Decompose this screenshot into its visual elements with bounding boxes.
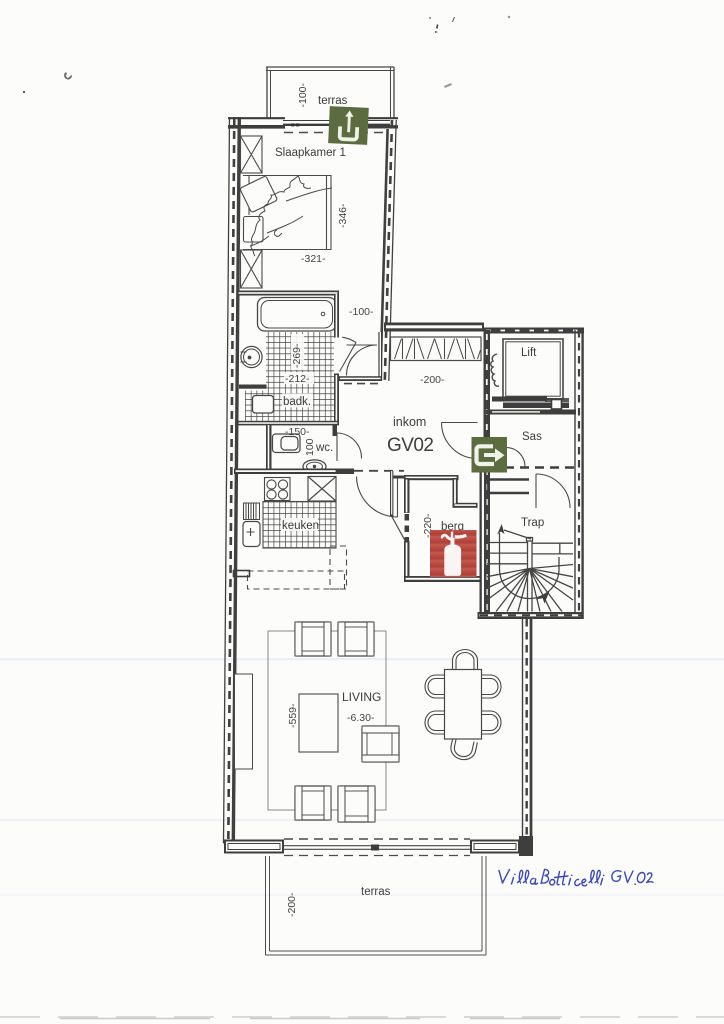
svg-text:Trap: Trap	[521, 517, 544, 529]
svg-text:terras: terras	[318, 95, 348, 107]
svg-text:-200-: -200-	[286, 892, 298, 917]
svg-text:-269-: -269-	[291, 343, 303, 368]
svg-text:keuken: keuken	[282, 520, 319, 532]
svg-text:-200-: -200-	[420, 374, 445, 386]
svg-text:Slaapkamer 1: Slaapkamer 1	[275, 147, 346, 159]
svg-text:inkom: inkom	[393, 415, 426, 429]
svg-text:-150-: -150-	[285, 426, 310, 438]
svg-text:badk.: badk.	[283, 396, 311, 408]
svg-text:GV02: GV02	[387, 435, 434, 456]
svg-text:-100-: -100-	[349, 306, 374, 318]
svg-text:-559-: -559-	[287, 703, 299, 728]
svg-text:Sas: Sas	[522, 431, 542, 443]
svg-text:-346-: -346-	[337, 203, 349, 228]
svg-text:-212-: -212-	[285, 373, 310, 385]
svg-text:-6.30-: -6.30-	[347, 712, 375, 724]
svg-text:100: 100	[304, 438, 316, 456]
svg-text:Lift: Lift	[521, 347, 537, 359]
svg-text:terras: terras	[361, 886, 391, 898]
svg-text:-321-: -321-	[301, 253, 326, 265]
svg-text:-100-: -100-	[297, 83, 309, 108]
svg-text:wc.: wc.	[315, 442, 333, 454]
svg-text:LIVING: LIVING	[342, 690, 381, 704]
